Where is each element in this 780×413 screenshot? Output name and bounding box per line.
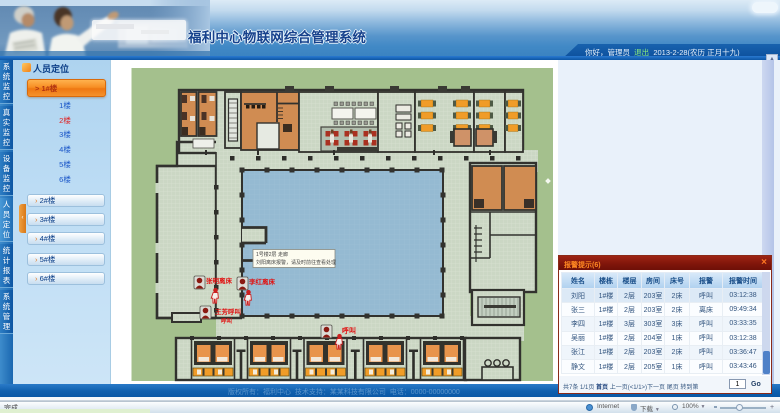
svg-text:呼叫: 呼叫 <box>342 326 356 335</box>
svg-text:刘阳离床报警，请及时前往查看处理: 刘阳离床报警，请及时前往查看处理 <box>256 259 336 266</box>
svg-text:李红离床: 李红离床 <box>248 277 276 286</box>
svg-text:呼叫: 呼叫 <box>221 317 233 325</box>
svg-text:张明离床: 张明离床 <box>206 276 233 285</box>
svg-text:1号楼2层 走廊: 1号楼2层 走廊 <box>256 251 288 258</box>
svg-text:王芳呼叫: 王芳呼叫 <box>215 307 241 316</box>
